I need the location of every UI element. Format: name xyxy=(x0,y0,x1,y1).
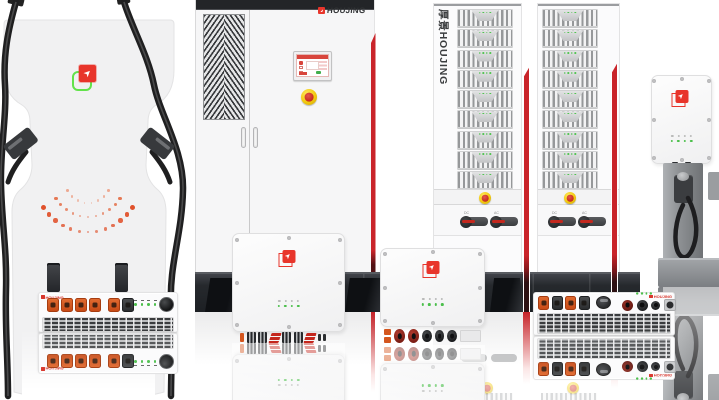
output-connector xyxy=(159,354,174,369)
status-dot xyxy=(91,202,93,204)
door-handle-right[interactable] xyxy=(253,127,258,148)
wall-mounted-charger-2: ➤ xyxy=(380,248,485,345)
module-fan-grille xyxy=(537,338,671,359)
connector xyxy=(384,329,391,343)
connector xyxy=(323,334,326,341)
screw xyxy=(383,252,387,256)
power-cabinet: HOUJING xyxy=(195,0,375,272)
pedestal-side-arm xyxy=(708,374,719,400)
dc-connector xyxy=(538,363,549,377)
screw xyxy=(707,79,711,83)
connector xyxy=(408,347,419,361)
module-brandmark: HOUJING xyxy=(41,367,64,372)
status-dot xyxy=(107,189,110,192)
connector xyxy=(294,332,303,343)
dc-connector xyxy=(565,363,576,377)
screw xyxy=(431,250,435,254)
status-dot xyxy=(78,230,81,233)
breaker-panel: DC AC xyxy=(434,205,521,236)
status-dot xyxy=(118,197,122,201)
tower-a-accent-stripe xyxy=(523,66,530,312)
ac-connector xyxy=(579,296,590,310)
status-dot xyxy=(47,212,52,217)
vertical-brand-label: 厚景HOUJING xyxy=(436,9,451,85)
connector xyxy=(422,348,432,360)
logo-arrow-icon: ➤ xyxy=(428,263,437,272)
dc-connector xyxy=(538,296,549,310)
screw xyxy=(235,281,239,285)
status-dot xyxy=(87,231,89,233)
screw xyxy=(338,323,342,327)
bottom-connectors xyxy=(232,332,345,343)
estop-strip xyxy=(538,189,619,205)
status-dot xyxy=(87,216,89,218)
status-dot xyxy=(114,203,117,206)
emergency-stop-button[interactable] xyxy=(301,89,317,105)
rack-module-slot xyxy=(457,151,513,169)
screw xyxy=(287,325,291,329)
wall-charger-unit: ➤ xyxy=(651,75,712,164)
switch-label-dc: DC xyxy=(552,211,557,215)
switch-label-ac: AC xyxy=(582,211,587,215)
connector xyxy=(422,330,432,342)
status-dot xyxy=(41,205,46,210)
screw xyxy=(707,156,711,160)
screw xyxy=(652,79,656,83)
status-dot xyxy=(54,197,58,201)
terminal-block xyxy=(460,330,481,342)
screw xyxy=(383,367,387,371)
status-dot xyxy=(79,215,81,217)
rack-module-slot xyxy=(457,29,513,47)
slat-reflection xyxy=(541,393,597,400)
houjing-logo-small: ➤ xyxy=(675,90,688,103)
houjing-logo-icon xyxy=(318,7,325,14)
status-leds xyxy=(421,298,443,308)
connector xyxy=(447,330,457,342)
logo-arrow-icon: ➤ xyxy=(677,92,686,101)
pedestal-base xyxy=(658,258,719,287)
dc-connector xyxy=(565,296,576,310)
module-unit-reflection: HOUJING xyxy=(38,333,178,374)
cabinet-accent-stripe xyxy=(371,33,376,272)
stripe-reflection xyxy=(523,312,530,384)
module-fan-grille xyxy=(42,317,174,332)
module-slots xyxy=(457,9,513,189)
connector xyxy=(318,334,321,341)
houjing-product-collage: ➤ HOUJING xyxy=(0,0,719,400)
connector xyxy=(240,333,244,342)
wall-mounted-charger-1: ➤ xyxy=(232,233,345,343)
gun-dock xyxy=(674,371,693,399)
status-dot xyxy=(102,212,105,215)
dc-connector xyxy=(61,354,73,368)
screw xyxy=(707,118,711,122)
rack-module-slot xyxy=(542,151,598,169)
status-dot xyxy=(72,212,75,215)
ac-connector xyxy=(552,363,563,377)
estop-strip xyxy=(434,189,521,205)
round-connector xyxy=(664,361,676,373)
cable-hook-left xyxy=(47,263,60,292)
cable-hook-right xyxy=(115,263,128,292)
status-dot xyxy=(118,218,122,222)
status-dot xyxy=(65,208,68,211)
screw xyxy=(338,238,342,242)
tower-emergency-stop[interactable] xyxy=(479,192,491,204)
connector xyxy=(384,347,391,361)
dc-connector xyxy=(47,354,59,368)
tower-b-accent-stripe xyxy=(611,62,618,312)
switch-label-ac: AC xyxy=(494,211,499,215)
logo-arrow-icon: ➤ xyxy=(284,251,293,260)
dc-connector xyxy=(108,354,120,368)
dc-connector xyxy=(47,298,59,312)
status-dot xyxy=(71,195,74,198)
connector xyxy=(408,329,419,343)
rotary-switch-dc[interactable] xyxy=(550,217,576,226)
status-dot xyxy=(103,195,106,198)
dc-connector xyxy=(108,298,120,312)
status-dot xyxy=(95,230,98,233)
rack-module-slot xyxy=(542,29,598,47)
breaker-panel: DC AC xyxy=(538,205,619,236)
module-brandmark: HOUJING xyxy=(649,373,672,378)
module-unit-reflection: HOUJING xyxy=(533,336,675,380)
charging-module-left: HOUJING HOUJING xyxy=(38,292,178,376)
rack-module-slot xyxy=(542,9,598,27)
connector xyxy=(282,332,291,343)
screw xyxy=(287,236,291,240)
rack-module-slot xyxy=(457,110,513,128)
rack-module-slot xyxy=(457,50,513,68)
dc-connector xyxy=(89,354,101,368)
rack-module-slot xyxy=(542,171,598,189)
stripe-reflection xyxy=(371,312,376,392)
door-handle-left[interactable] xyxy=(241,127,246,148)
status-dot xyxy=(97,199,99,201)
led-indicators xyxy=(134,360,157,366)
status-dot xyxy=(61,224,65,228)
dc-connector xyxy=(75,354,87,368)
status-dot xyxy=(69,227,72,230)
ac-connector xyxy=(579,363,590,377)
connector xyxy=(247,332,256,343)
status-dot xyxy=(111,224,115,228)
connector xyxy=(435,330,445,342)
ac-connector xyxy=(122,354,134,368)
round-connector xyxy=(622,300,633,311)
screen-header xyxy=(297,55,328,59)
status-dot xyxy=(95,215,97,217)
switch-reflection xyxy=(491,354,517,362)
module-unit: HOUJING xyxy=(38,292,178,333)
rack-module-slot xyxy=(542,70,598,88)
screw xyxy=(652,156,656,160)
led-indicators xyxy=(134,300,157,306)
houjing-logo-small: ➤ xyxy=(282,250,295,263)
connector xyxy=(394,329,405,343)
screw xyxy=(478,286,482,290)
status-led-arc xyxy=(0,0,190,260)
power-stack-tower-b: DC AC xyxy=(537,3,620,312)
brand-name: HOUJING xyxy=(327,6,367,15)
ventilation-grille xyxy=(203,14,245,120)
screw xyxy=(680,158,684,162)
slat-reflection xyxy=(457,393,513,400)
screw xyxy=(652,118,656,122)
status-dot xyxy=(104,227,107,230)
round-connector xyxy=(651,363,660,372)
tower-emergency-stop[interactable] xyxy=(564,192,576,204)
connector xyxy=(303,333,316,343)
module-fan-grille xyxy=(42,334,174,349)
screw xyxy=(235,323,239,327)
dc-connector xyxy=(89,298,101,312)
status-dot xyxy=(66,189,69,192)
dc-connector xyxy=(75,298,87,312)
status-leds xyxy=(670,135,692,145)
bottom-connectors xyxy=(380,327,485,345)
rack-module-slot xyxy=(457,171,513,189)
status-dot xyxy=(77,199,79,201)
status-dot xyxy=(125,212,130,217)
module-fan-grille xyxy=(537,313,671,334)
status-dot xyxy=(130,205,135,210)
screw xyxy=(383,319,387,323)
charger-pedestal xyxy=(663,163,719,287)
charging-gun[interactable] xyxy=(677,393,689,400)
round-connector xyxy=(637,300,648,311)
screw xyxy=(235,238,239,242)
screw xyxy=(431,321,435,325)
module-slots xyxy=(542,9,598,189)
screw xyxy=(478,319,482,323)
status-leds xyxy=(277,300,299,310)
status-dot xyxy=(108,208,111,211)
output-connector xyxy=(159,297,174,312)
rotary-switch-dc[interactable] xyxy=(462,217,488,226)
rotary-knob[interactable] xyxy=(596,363,611,376)
rack-module-slot xyxy=(542,50,598,68)
houjing-logo-small: ➤ xyxy=(426,261,439,274)
ac-connector xyxy=(552,296,563,310)
module-brandmark: HOUJING xyxy=(649,294,672,299)
rack-module-slot xyxy=(542,131,598,149)
rack-module-slot xyxy=(542,110,598,128)
touchscreen[interactable] xyxy=(293,51,332,81)
rack-module-slot xyxy=(457,9,513,27)
connector xyxy=(394,347,405,361)
module-unit: HOUJING xyxy=(533,292,675,336)
houjing-wordmark: HOUJING xyxy=(318,6,366,15)
dc-connector xyxy=(61,298,73,312)
status-dot xyxy=(84,202,86,204)
round-connector xyxy=(622,362,633,373)
screw xyxy=(478,252,482,256)
rotary-knob[interactable] xyxy=(596,296,611,309)
ac-connector xyxy=(122,298,134,312)
rotary-switch-ac[interactable] xyxy=(492,217,518,226)
switch-reflection xyxy=(461,354,487,362)
screen-chart-area xyxy=(306,61,319,70)
switch-label-dc: DC xyxy=(464,211,469,215)
screen-start-button xyxy=(316,71,321,74)
screw xyxy=(383,286,387,290)
round-connector xyxy=(637,362,648,373)
connector xyxy=(268,333,281,343)
screw xyxy=(338,281,342,285)
rack-module-slot xyxy=(457,70,513,88)
rotary-switch-ac[interactable] xyxy=(580,217,606,226)
rack-module-slot xyxy=(542,90,598,108)
rack-module-slot xyxy=(457,131,513,149)
status-dot xyxy=(59,203,62,206)
led-indicators xyxy=(636,377,652,379)
status-dot xyxy=(53,218,57,222)
screw xyxy=(680,77,684,81)
rack-module-slot xyxy=(457,90,513,108)
round-connector xyxy=(651,301,660,310)
round-connector xyxy=(664,299,676,311)
charging-module-right: HOUJING xyxy=(533,292,675,380)
connector xyxy=(258,332,267,343)
